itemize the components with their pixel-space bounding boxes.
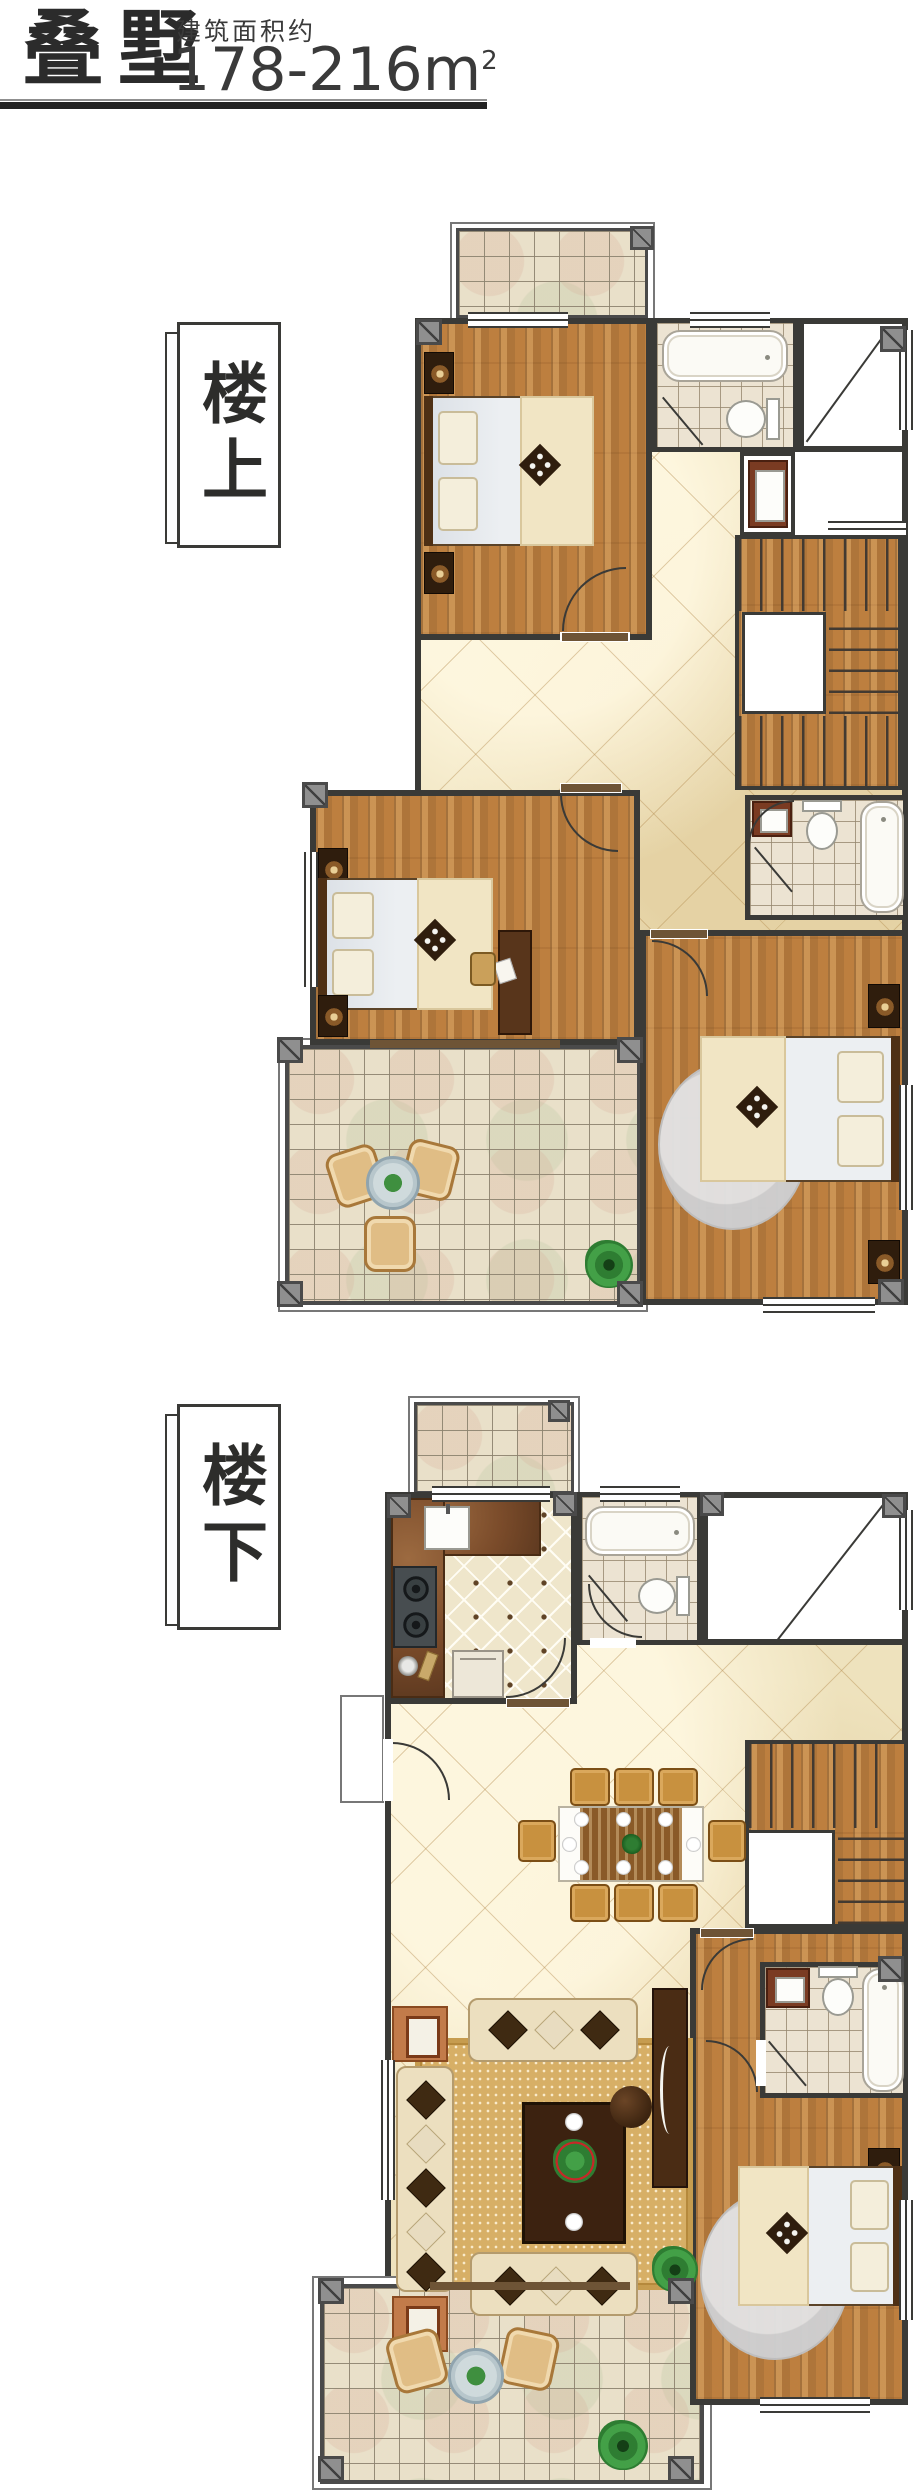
fridge-icon — [452, 1650, 504, 1698]
plate-icon — [562, 1837, 577, 1852]
bathtub-icon — [662, 330, 788, 382]
toilet-icon — [818, 1966, 858, 1978]
plate-icon — [658, 1860, 673, 1875]
door-threshold — [561, 784, 621, 792]
upper-label-text: 楼上 — [180, 325, 278, 545]
bed-pillow — [850, 2180, 889, 2230]
stair-flight-right — [838, 1830, 904, 1924]
lower-stair-void — [702, 1492, 908, 1645]
stair-flight-bottom — [739, 716, 898, 786]
stair-flight-top — [739, 539, 898, 611]
coffee-table — [522, 2102, 626, 2244]
burner-icon — [403, 1612, 429, 1638]
living-window-west — [381, 2060, 395, 2200]
lamp-icon — [431, 365, 449, 383]
toilet-icon — [638, 1578, 676, 1614]
flowers-icon — [553, 2139, 597, 2183]
lower-label-box: 楼下 — [177, 1404, 281, 1630]
stove-icon — [393, 1566, 437, 1648]
terrace-column — [318, 2278, 344, 2304]
sofa-cushion — [534, 2010, 574, 2050]
bed-headboard — [318, 878, 327, 1010]
sofa-cushion — [406, 2080, 446, 2120]
plate-icon — [574, 1812, 589, 1827]
bed-pillow — [837, 1115, 884, 1167]
upper-desk-chair — [470, 952, 496, 986]
terrace-column — [668, 2278, 694, 2304]
fridge-handle — [460, 1658, 496, 1660]
plate-icon — [686, 1837, 701, 1852]
floorplan-page: 叠墅 建筑面积约 178-216m2 楼上 — [0, 0, 913, 2491]
dining-table — [558, 1806, 704, 1882]
lamp-icon — [876, 1254, 894, 1272]
upper-bed-south — [700, 1036, 900, 1182]
sink-icon — [755, 470, 785, 522]
sofa-cushion — [580, 2010, 620, 2050]
lower-bathroom-north-doorway — [590, 1638, 636, 1648]
terrace-column — [277, 1037, 303, 1063]
bed-pillow — [332, 949, 374, 997]
lower-bed — [738, 2166, 902, 2306]
plate-icon — [658, 1812, 673, 1827]
ottoman-icon — [610, 2086, 652, 2128]
terrace-column — [318, 2456, 344, 2482]
upper-balcony — [456, 228, 648, 318]
sofa-cushion — [406, 2212, 446, 2252]
stair-under-rail — [749, 1830, 835, 1924]
upper-master-column — [302, 782, 328, 808]
tub-drain — [882, 1985, 887, 1990]
area-superscript: 2 — [481, 46, 498, 76]
terrace-table — [366, 1156, 420, 1210]
centerpiece-plant-icon — [622, 1834, 642, 1854]
lower-kitchen-column-east — [553, 1492, 577, 1516]
tv-icon — [660, 2046, 679, 2134]
lower-kitchen-window — [432, 1486, 550, 1502]
lower-void-column-east — [882, 1494, 906, 1518]
lower-bedroom-window-south — [760, 2397, 870, 2413]
lamp-icon — [876, 998, 894, 1016]
lower-void-column-west — [700, 1492, 724, 1516]
upper-master-nightstand-2 — [318, 995, 348, 1037]
upper-desk — [498, 930, 532, 1035]
sofa-cushion — [406, 2168, 446, 2208]
stair-flight-top — [749, 1744, 895, 1828]
vanity-cabinet — [766, 1968, 810, 2008]
bed-pillow — [438, 477, 479, 531]
upper-balcony-column — [630, 226, 654, 250]
bathtub-icon — [860, 801, 904, 913]
lamp-icon — [325, 1008, 343, 1026]
dining-chair — [570, 1884, 610, 1922]
sink-icon — [775, 1977, 805, 2003]
tub-drain — [881, 817, 886, 822]
door-threshold — [701, 1929, 753, 1937]
toilet-icon — [806, 812, 838, 850]
lower-bathroom-north-window — [600, 1486, 680, 1502]
dining-chair — [614, 1884, 654, 1922]
kettle-icon — [398, 1656, 418, 1676]
area-value: 178-216m2 — [172, 40, 498, 100]
sofa-cushion — [488, 2010, 528, 2050]
terrace-threshold — [370, 1040, 560, 1048]
faucet-icon — [446, 1504, 450, 1514]
plate-icon — [616, 1812, 631, 1827]
entry-doorway — [383, 1739, 393, 1801]
plant-icon — [598, 2420, 648, 2470]
upper-southeast-column — [878, 1279, 904, 1305]
lower-bedroom-window-east — [899, 2200, 913, 2320]
upper-bathroom-north-window — [690, 312, 770, 328]
lamp-icon — [431, 565, 449, 583]
sofa-long — [396, 2066, 454, 2292]
bed-pillow — [438, 411, 479, 465]
tv-cabinet — [652, 1988, 688, 2188]
dining-chair — [570, 1768, 610, 1806]
tub-drain — [765, 355, 770, 360]
upper-master-window — [304, 852, 318, 987]
bed-pillow — [837, 1051, 884, 1103]
plate-icon — [565, 2113, 583, 2131]
toilet-icon — [802, 800, 842, 812]
bathtub-icon — [862, 1968, 904, 2092]
bed-pillow — [332, 892, 374, 940]
title-rule-thick — [0, 102, 487, 109]
toilet-icon — [766, 398, 780, 440]
lower-balcony-column — [548, 1400, 570, 1422]
terrace-column — [617, 1037, 643, 1063]
upper-northeast-column — [880, 326, 906, 352]
upper-master-bed — [318, 878, 493, 1010]
terrace-column — [617, 1281, 643, 1307]
dining-chair — [518, 1820, 556, 1862]
bed-headboard — [424, 396, 433, 546]
lower-label-text: 楼下 — [180, 1407, 278, 1627]
dining-chair — [658, 1884, 698, 1922]
toilet-icon — [676, 1576, 690, 1616]
bed-pillow — [850, 2242, 889, 2292]
door-threshold — [562, 633, 628, 641]
side-table — [392, 2006, 448, 2062]
stair-void-opening — [742, 612, 826, 714]
entry-stoop — [340, 1695, 384, 1803]
upper-bedroom-south-window-east — [899, 1085, 913, 1210]
upper-bed-north — [424, 396, 594, 546]
upper-label-box: 楼上 — [177, 322, 281, 548]
terrace-threshold — [430, 2282, 630, 2290]
upper-bedroom-south-window — [763, 1297, 875, 1313]
terrace-column — [277, 1281, 303, 1307]
upper-nightstand-2 — [424, 552, 454, 594]
sofa-cushion — [406, 2124, 446, 2164]
lamp-icon — [325, 861, 343, 879]
terrace-table — [448, 2348, 504, 2404]
bathtub-icon — [585, 1506, 695, 1556]
toilet-icon — [822, 1978, 854, 2016]
dining-chair — [658, 1768, 698, 1806]
lower-bathroom-south-doorway — [756, 2040, 766, 2086]
vanity-cabinet — [748, 460, 788, 528]
dining-chair — [614, 1768, 654, 1806]
upper-nightstand-1 — [424, 352, 454, 394]
upper-south-nightstand-1 — [868, 984, 900, 1028]
area-number: 178-216m — [172, 35, 481, 105]
terrace-column — [668, 2456, 694, 2482]
tub-drain — [674, 1530, 679, 1535]
upper-lightwell-window — [828, 521, 906, 537]
lower-void-window — [899, 1510, 913, 1610]
door-threshold — [507, 1699, 569, 1707]
stair-flight-right — [829, 620, 898, 714]
upper-south-nightstand-2 — [868, 1240, 900, 1284]
plate-icon — [616, 1860, 631, 1875]
burner-icon — [403, 1576, 429, 1602]
sofa-loveseat-top — [468, 1998, 638, 2062]
title-rule-thin — [0, 99, 487, 101]
terrace-chair — [364, 1216, 416, 1272]
plate-icon — [574, 1860, 589, 1875]
lower-bath-column — [878, 1956, 904, 1982]
framed-decor-icon — [406, 2016, 440, 2058]
upper-bedroom-north-column — [416, 319, 442, 345]
kitchen-sink-icon — [424, 1506, 470, 1550]
lower-kitchen-column — [387, 1494, 411, 1518]
toilet-icon — [726, 400, 766, 438]
upper-bedroom-north-window — [468, 312, 568, 328]
door-threshold — [651, 930, 707, 938]
dining-chair — [708, 1820, 746, 1862]
plate-icon — [565, 2213, 583, 2231]
